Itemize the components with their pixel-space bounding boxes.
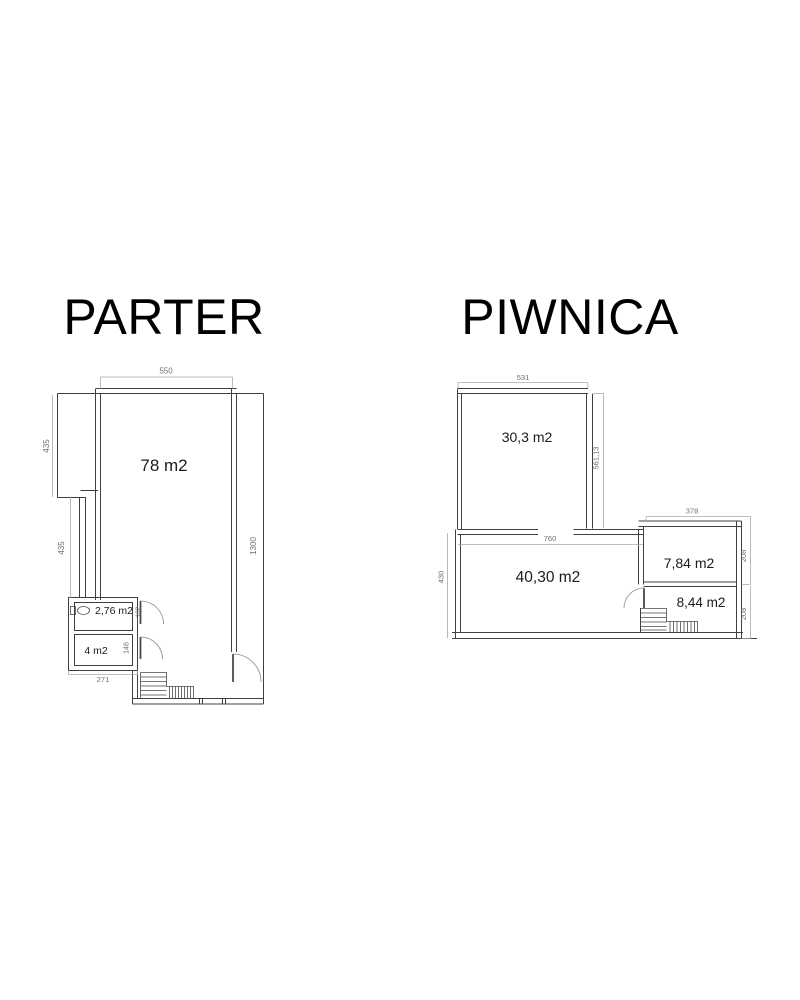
- dim-piwnica-top: 531: [517, 373, 530, 382]
- toilet-icon: [71, 607, 90, 615]
- dim-piwnica-side-right-lower: 208: [739, 608, 748, 621]
- dim-parter-left-upper: 435: [42, 439, 51, 453]
- door-entrance: [233, 654, 261, 682]
- door-storage: [141, 637, 163, 659]
- room-label-main: 78 m2: [140, 456, 187, 475]
- piwnica-door: [624, 588, 644, 608]
- piwnica-plan: PIWNICA: [437, 289, 758, 639]
- piwnica-stairs: [641, 609, 698, 633]
- floorplan-drawing: PARTER: [0, 0, 800, 1000]
- parter-plan: PARTER: [42, 289, 265, 704]
- room-label-storage: 4 m2: [84, 645, 108, 657]
- floorplan-page: PARTER: [0, 0, 800, 1000]
- dim-parter-top: 550: [159, 367, 173, 376]
- dim-parter-right: 1300: [249, 537, 258, 555]
- dim-parter-left-lower: 435: [57, 541, 66, 555]
- dim-piwnica-middle: 760: [544, 534, 557, 543]
- room-label-piwnica-side-upper: 7,84 m2: [664, 555, 715, 571]
- dim-piwnica-side-right-upper: 208: [739, 550, 748, 563]
- parter-stairs: [141, 673, 194, 699]
- parter-title: PARTER: [63, 289, 264, 345]
- room-label-piwnica-upper: 30,3 m2: [502, 429, 553, 445]
- piwnica-title: PIWNICA: [461, 289, 679, 345]
- room-label-piwnica-side-lower: 8,44 m2: [677, 595, 726, 610]
- room-label-piwnica-main: 40,30 m2: [516, 569, 581, 586]
- parter-doors: [141, 601, 262, 682]
- dim-piwnica-upper-right: 561,13: [592, 447, 601, 470]
- door-wc: [141, 601, 164, 624]
- dim-parter-bottom: 271: [97, 675, 110, 684]
- dim-wc-height: 102: [135, 606, 142, 617]
- dim-piwnica-side-top: 378: [686, 507, 699, 516]
- dim-piwnica-left: 430: [437, 571, 446, 584]
- dim-storage-height: 146: [124, 642, 131, 654]
- room-label-wc: 2,76 m2: [95, 605, 133, 617]
